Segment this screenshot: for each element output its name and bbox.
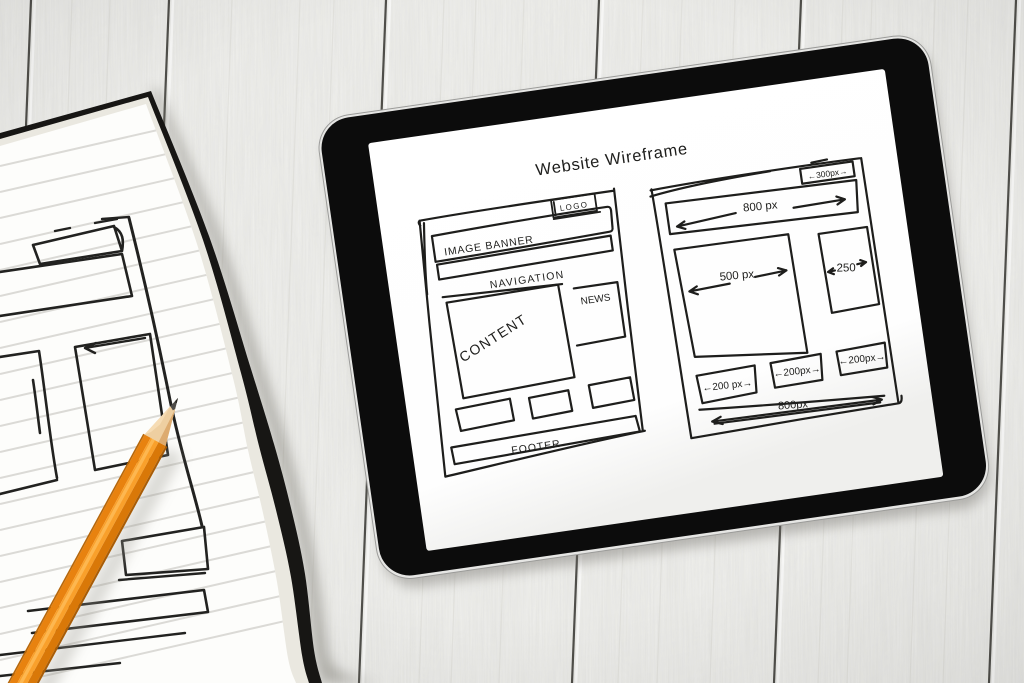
svg-text:800px: 800px bbox=[778, 398, 809, 412]
svg-text:250: 250 bbox=[836, 262, 855, 274]
